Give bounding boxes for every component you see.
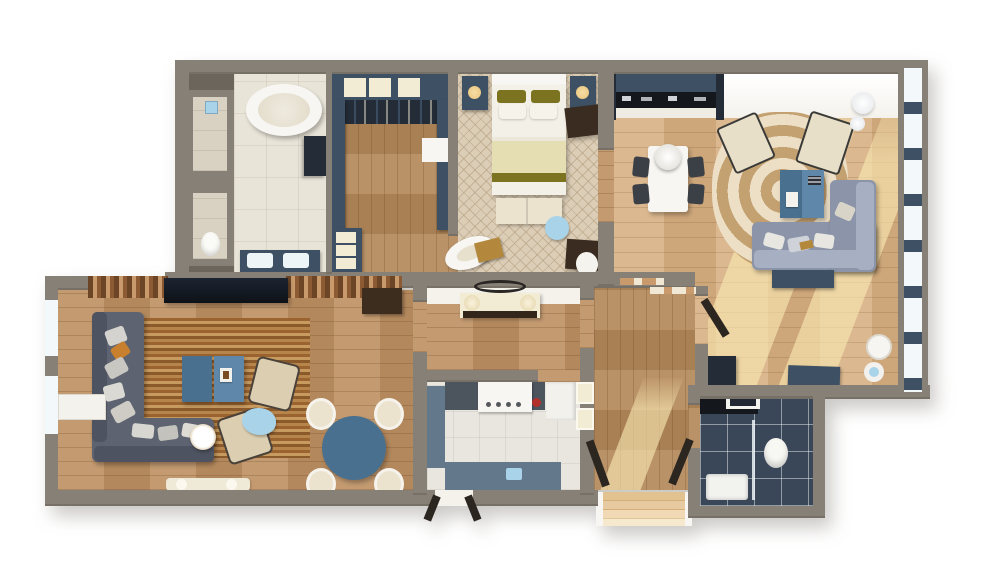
door-threshold (538, 370, 580, 382)
blue-counter-item (506, 468, 522, 480)
bench-cushion (226, 479, 237, 490)
pouf-blue-top-inner (869, 367, 879, 377)
bath2-right-wall (813, 385, 825, 518)
storage-box (369, 78, 391, 97)
headboard (492, 74, 566, 85)
apartment-floor-plan (0, 0, 1000, 587)
white-pillow (530, 104, 557, 119)
linen-nook (422, 138, 450, 162)
entry-family-wall-upper (413, 286, 427, 302)
olive-pillow (497, 90, 526, 103)
outer-wall-bottom-left (45, 490, 435, 506)
range-burner (486, 402, 491, 407)
door-threshold (580, 300, 594, 348)
left-base-cabinets (427, 386, 445, 468)
drum-side-table (190, 424, 216, 450)
coffee-table-books (786, 192, 798, 207)
table-lamp-right (576, 86, 589, 99)
bath2-bottom-wall (688, 506, 825, 518)
closet-left-cabinets (332, 100, 345, 230)
rain-showerhead-icon (205, 101, 218, 114)
console-lamp-right (520, 295, 536, 311)
sphere-floor-lamp-small (850, 116, 865, 131)
console-behind-sofa (772, 270, 834, 288)
round-side-table (545, 216, 569, 240)
outer-wall-top (175, 60, 905, 74)
coffee-table-decor (808, 176, 821, 185)
hanging-rail (342, 100, 442, 124)
tall-white-cabinet (546, 382, 576, 420)
bottom-base-cabinets (445, 462, 561, 490)
closet-bedroom-wall (448, 62, 458, 236)
pouf-white (866, 334, 892, 360)
sectional-back-cushions-right (856, 182, 874, 270)
counter-appliance (622, 96, 631, 101)
sofa-pillow (131, 423, 154, 439)
storage-box (398, 78, 420, 97)
storage-box (344, 78, 366, 97)
living-hall-wall-upper (695, 286, 708, 296)
entry-kitchen-wall (427, 370, 538, 382)
sofa-pillow (157, 425, 179, 442)
shower-tray (706, 474, 748, 500)
island-drawer (336, 245, 356, 256)
counter-appliance (668, 96, 677, 101)
bath-closet-wall (326, 62, 332, 274)
wall-niche-shelf (576, 408, 594, 430)
media-bench (788, 365, 841, 387)
tv-console (164, 278, 288, 303)
window-bay-sill (58, 394, 106, 420)
vanity-sink-right (283, 253, 309, 268)
bath-wall-cabinet (304, 136, 326, 176)
stall-divider (186, 176, 234, 188)
side-cabinet-brown (362, 288, 402, 314)
olive-pillow (531, 90, 560, 103)
red-kettle (532, 398, 541, 407)
range-burner (516, 402, 521, 407)
display-trays (620, 278, 664, 285)
oval-bathtub-basin (258, 93, 310, 127)
island-drawer (336, 258, 356, 269)
console-base (463, 311, 537, 318)
vanity-sink-left (247, 253, 273, 268)
left-wall-glazing-lower (45, 376, 58, 434)
door-threshold (598, 150, 614, 222)
twin-coffee-table-left (182, 356, 212, 402)
hall-left-wall-upper (580, 286, 594, 300)
sofa-pillow (813, 233, 835, 250)
wall-niche-shelf (576, 382, 594, 404)
sphere-floor-lamp (852, 92, 874, 114)
bedroom-right-wall-lower (598, 222, 614, 286)
dining-chair (687, 183, 705, 204)
table-lamp-left (468, 86, 481, 99)
entry-family-wall-lower (413, 352, 427, 495)
coffee-table-decor-brown (223, 371, 229, 379)
entry-steps (602, 492, 686, 526)
bench-cushion (176, 479, 187, 490)
console-lamp-left (464, 295, 480, 311)
glass-shower-screen (752, 420, 755, 500)
range-burner (506, 402, 511, 407)
bedroom-right-wall-upper (598, 62, 614, 150)
kitchen-galley-base-cabinets (614, 108, 718, 118)
tub-chair-1 (306, 398, 336, 430)
galley-side-panel-right (716, 72, 724, 120)
kitchen-galley-upper-cabinets (612, 72, 720, 92)
pedestal-vase (655, 144, 681, 170)
white-pillow (499, 104, 526, 119)
dining-chair (687, 156, 705, 178)
slat-tv-wall-left (88, 276, 168, 298)
dining-chair (632, 183, 650, 204)
bath2-top-wall (688, 385, 825, 398)
dining-chair (632, 156, 650, 178)
door-threshold (413, 302, 427, 352)
round-dining-table (322, 416, 386, 480)
floor-plan-stage (0, 0, 1000, 587)
window-wall-glazing (904, 68, 922, 392)
range-burner (496, 402, 501, 407)
toilet (201, 232, 220, 256)
range-with-hood (478, 382, 532, 412)
bath2-left-wall-upper (688, 385, 700, 405)
cloud-side-table (242, 408, 276, 435)
counter-appliance (694, 97, 706, 101)
display-trays (650, 287, 696, 294)
left-wall-glazing-upper (45, 300, 58, 356)
ceiling-vent-inner (730, 399, 756, 406)
tub-chair-2 (374, 398, 404, 430)
toilet-second-bath (764, 438, 788, 468)
island-drawer (336, 232, 356, 243)
counter-appliance (641, 97, 652, 101)
oval-wall-mirror (474, 280, 526, 293)
